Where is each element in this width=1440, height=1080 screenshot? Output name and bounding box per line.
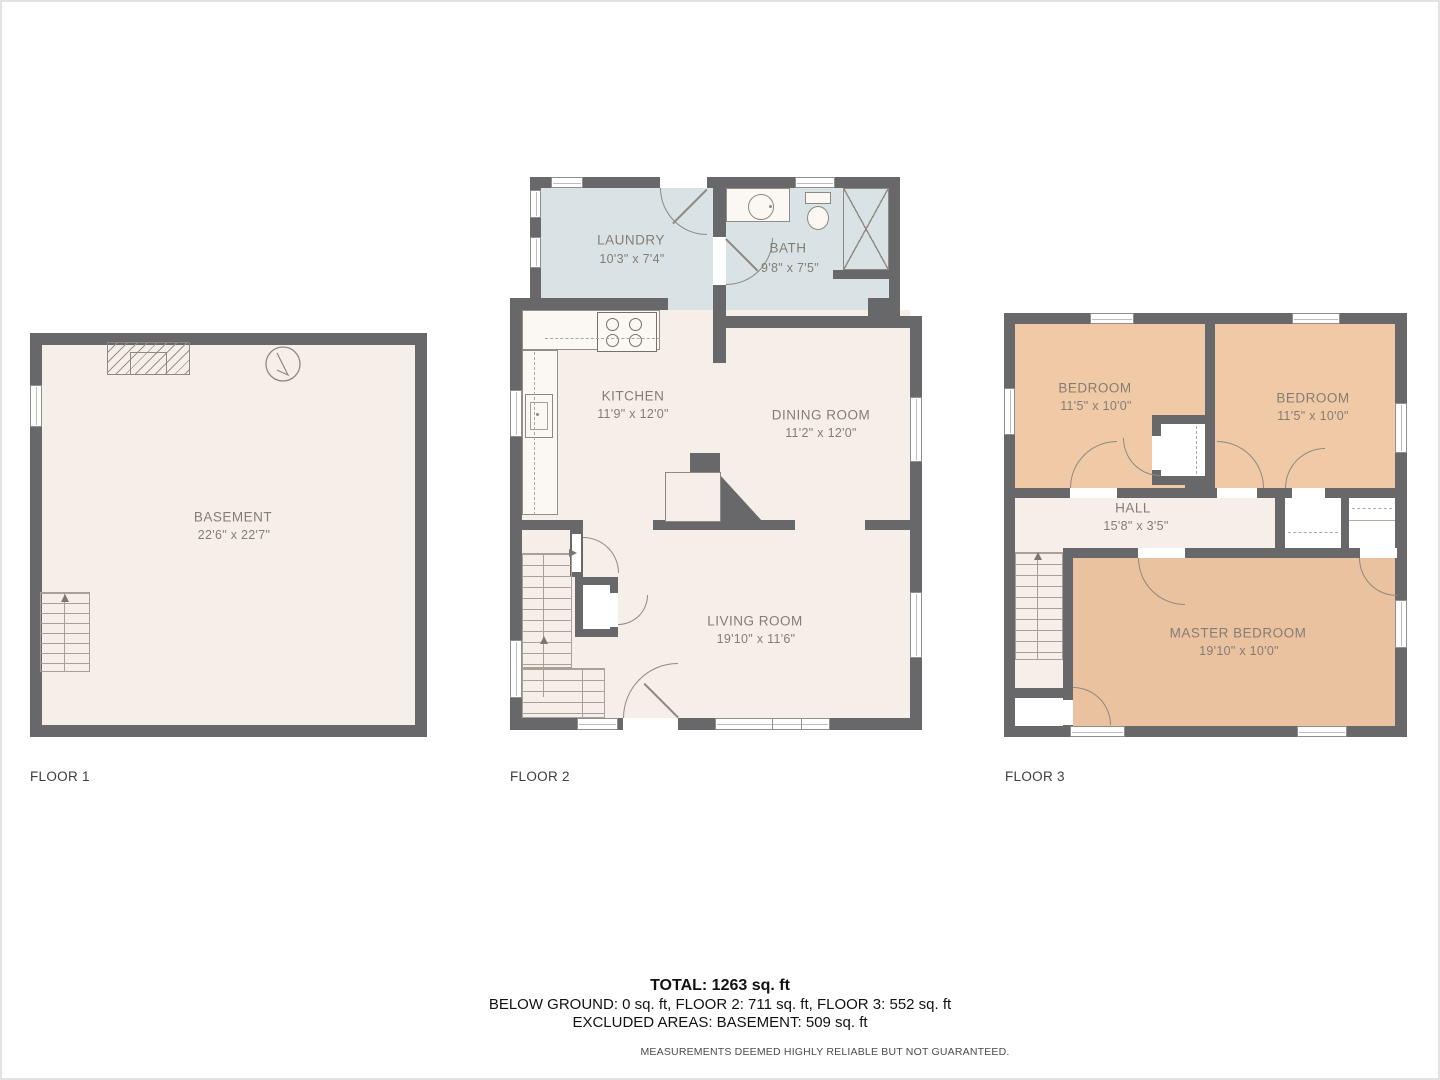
wall (868, 298, 889, 316)
closet-rod-dashed-line (1196, 426, 1197, 474)
stairs-icon (522, 553, 572, 668)
window (577, 718, 618, 730)
window-mullion (801, 719, 802, 729)
window-mullion (772, 719, 773, 729)
closet-door-opening (1292, 488, 1325, 498)
floor-2-label: FLOOR 2 (510, 769, 570, 784)
closet-interior (1349, 498, 1395, 548)
room-dims-bedroom1: 11'5" x 10'0" (1060, 399, 1132, 413)
wall (1185, 476, 1205, 492)
closet-shelf-line (1349, 520, 1395, 521)
room-dims-bedroom2: 11'5" x 10'0" (1277, 409, 1349, 423)
room-label-living: LIVING ROOM (707, 614, 803, 629)
window (1004, 388, 1015, 435)
under-stair-closet (1015, 698, 1063, 726)
window (551, 177, 583, 188)
stairs-arrow-icon (569, 549, 577, 557)
closet-interior (1161, 424, 1205, 476)
floor-areas-text: BELOW GROUND: 0 sq. ft, FLOOR 2: 711 sq.… (489, 996, 951, 1013)
wall (1395, 313, 1407, 737)
room-label-dining: DINING ROOM (772, 408, 871, 423)
window (910, 397, 922, 462)
room-dims-laundry: 10'3" x 7'4" (599, 252, 664, 266)
wall (30, 333, 427, 345)
bedroom1-door-opening (1070, 488, 1117, 498)
room-label-bath: BATH (769, 241, 806, 256)
window (530, 237, 541, 268)
floor-3-label: FLOOR 3 (1005, 769, 1065, 784)
stairs-center-line (1037, 556, 1038, 660)
master-door-opening (1138, 548, 1185, 558)
stairs-center-line (543, 553, 544, 697)
laundry-door-opening (660, 177, 707, 188)
wall (865, 520, 910, 530)
bedroom2-door-opening (1217, 488, 1257, 498)
wall (889, 177, 900, 328)
stairs-divider-line (582, 668, 583, 718)
window (1090, 313, 1134, 324)
room-label-basement: BASEMENT (194, 510, 272, 525)
wall (518, 520, 583, 530)
kitchen-sink-basin (530, 402, 548, 430)
fireplace-hearth-icon (665, 472, 721, 522)
closet-door-opening (1360, 548, 1397, 558)
room-label-bedroom2: BEDROOM (1276, 391, 1349, 406)
stairs-icon (40, 592, 90, 672)
cabinet-dashed-line (545, 338, 660, 339)
window (1070, 726, 1125, 737)
stairs-center-line (543, 553, 569, 554)
stairs-up-arrow-icon (1034, 552, 1042, 560)
window (795, 177, 835, 188)
room-label-bedroom1: BEDROOM (1058, 381, 1131, 396)
window (1297, 726, 1347, 737)
master-entry-opening (1063, 700, 1073, 725)
closet-rod-dashed-line (1352, 508, 1392, 509)
window (1292, 313, 1340, 324)
window (1395, 403, 1407, 453)
room-label-hall: HALL (1115, 501, 1151, 516)
wall (726, 316, 922, 328)
bath-door-opening (713, 237, 726, 285)
excluded-areas-text: EXCLUDED AREAS: BASEMENT: 509 sq. ft (572, 1014, 867, 1031)
stairs-up-arrow-icon (540, 636, 548, 644)
window (510, 390, 522, 437)
toilet-bowl-icon (807, 206, 829, 230)
cabinet-dashed-line (534, 352, 535, 515)
room-dims-living: 19'10" x 11'6" (717, 632, 796, 646)
stairs-icon (522, 668, 605, 718)
wall (1004, 488, 1407, 498)
room-dims-master: 19'10" x 10'0" (1199, 644, 1279, 658)
room-label-kitchen: KITCHEN (602, 389, 665, 404)
master-floor-area (1073, 558, 1395, 726)
closet-interior (1285, 498, 1341, 548)
wall (415, 333, 427, 737)
water-heater-icon (265, 346, 301, 382)
utility-inner-box (130, 352, 167, 375)
wall (910, 316, 922, 730)
wall (30, 725, 427, 737)
closet-rod-dashed-line (1288, 532, 1338, 533)
wall (1004, 313, 1015, 737)
room-dims-bath: 9'8" x 7'5" (761, 261, 819, 275)
wall (1205, 313, 1215, 498)
wall (1015, 688, 1073, 698)
room-label-master: MASTER BEDROOM (1170, 626, 1307, 641)
shower-icon (843, 188, 889, 270)
stairs-center-line (64, 592, 65, 672)
wall (833, 270, 889, 279)
stove-icon (597, 312, 657, 352)
floor-1-label: FLOOR 1 (30, 769, 90, 784)
stairs-icon (1015, 552, 1063, 660)
room-label-laundry: LAUNDRY (597, 233, 665, 248)
wall (510, 298, 668, 310)
room-dims-basement: 22'6" x 22'7" (198, 528, 270, 542)
front-door-opening (623, 718, 678, 730)
floorplan-canvas: BASEMENT 22'6" x 22'7" FLOOR 1 (0, 0, 1440, 1080)
faucet-dot (536, 413, 539, 416)
wall (1275, 498, 1285, 548)
total-area-text: TOTAL: 1263 sq. ft (650, 977, 790, 995)
disclaimer-text: MEASUREMENTS DEEMED HIGHLY RELIABLE BUT … (640, 1046, 1009, 1058)
room-dims-hall: 15'8" x 3'5" (1103, 519, 1168, 533)
toilet-tank-icon (805, 192, 831, 204)
wall (1341, 498, 1349, 548)
window (30, 385, 42, 427)
window (1395, 600, 1407, 648)
window (530, 190, 541, 218)
faucet-dot (769, 205, 772, 208)
wall (1063, 548, 1407, 558)
closet-door-opening (610, 593, 618, 627)
closet-interior (583, 585, 610, 629)
room-dims-kitchen: 11'9" x 12'0" (597, 407, 669, 421)
stairs-up-arrow-icon (61, 594, 69, 602)
window (510, 640, 522, 698)
window (910, 592, 922, 658)
room-dims-dining: 11'2" x 12'0" (785, 426, 857, 440)
